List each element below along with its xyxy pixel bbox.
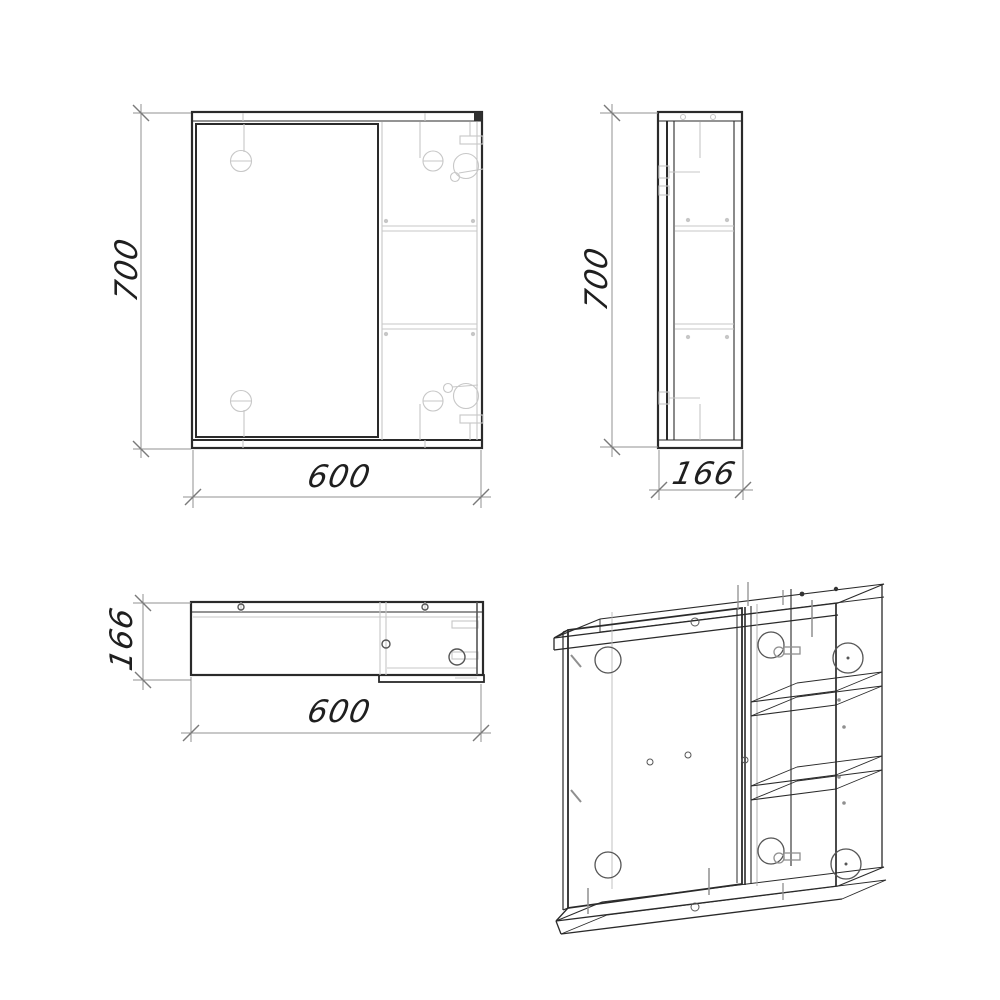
side-depth-label: 166 xyxy=(669,456,739,492)
front-carcass-outline xyxy=(192,112,482,448)
front-shelf-section xyxy=(382,122,483,440)
front-width-dimension: 600 xyxy=(183,450,491,508)
side-depth-dimension: 166 xyxy=(649,450,753,500)
top-width-dimension: 600 xyxy=(181,677,491,742)
iso-hinge-hole-top xyxy=(595,647,621,673)
drawing-sheet: 700 600 xyxy=(0,0,1000,1000)
front-height-dimension: 700 xyxy=(109,104,191,458)
top-width-label: 600 xyxy=(304,694,374,730)
top-view: 166 600 xyxy=(104,594,491,742)
front-height-label: 700 xyxy=(109,235,145,305)
isometric-view xyxy=(554,582,886,934)
front-door-hinges xyxy=(231,113,426,448)
side-height-label: 700 xyxy=(579,244,615,314)
technical-drawing: 700 600 xyxy=(0,0,1000,1000)
side-view: 700 166 xyxy=(579,104,753,500)
side-interior-details xyxy=(659,115,734,441)
iso-shelf-box xyxy=(709,582,882,900)
front-corner-block xyxy=(474,112,482,121)
iso-fasteners xyxy=(709,582,846,900)
front-view: 700 600 xyxy=(109,104,491,508)
iso-shelf-b xyxy=(751,756,882,800)
top-depth-dimension: 166 xyxy=(104,594,191,690)
iso-hinge-hole-bottom xyxy=(595,852,621,878)
top-depth-label: 166 xyxy=(104,604,140,674)
iso-top-slab xyxy=(554,584,884,650)
front-mirror-door xyxy=(196,124,378,437)
iso-shelf-a xyxy=(751,672,882,716)
top-carcass-outline xyxy=(191,602,483,675)
side-height-dimension: 700 xyxy=(579,104,658,457)
front-width-label: 600 xyxy=(304,459,374,495)
iso-mirror-door xyxy=(563,608,742,914)
iso-back-hole-bottom xyxy=(758,838,784,864)
iso-back-hole-top xyxy=(758,632,784,658)
top-fittings xyxy=(238,602,477,675)
top-interior-details xyxy=(193,602,480,678)
